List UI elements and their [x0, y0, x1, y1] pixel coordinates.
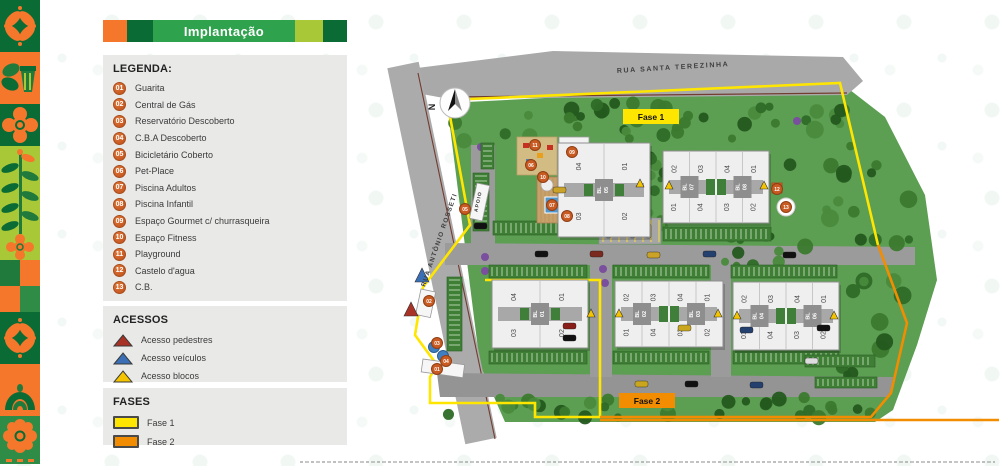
unit-label: 01 [821, 295, 828, 303]
fase1-label: Fase 1 [623, 109, 679, 124]
carport [613, 351, 709, 364]
tree [830, 114, 841, 125]
legend-item-label: Central de Gás [135, 100, 196, 110]
legend-item-label: Castelo d'agua [135, 266, 195, 276]
legend-item-label: Piscina Adultos [135, 183, 196, 193]
tree [672, 124, 681, 133]
acesso-item: Acesso veículos [113, 349, 337, 367]
legend-item-number: 09 [113, 215, 126, 228]
tree [784, 158, 797, 171]
fase-item: Fase 2 [113, 432, 337, 451]
tile-x-flower [0, 0, 40, 52]
legend-item-number: 07 [113, 181, 126, 194]
unit-label: 01 [751, 165, 758, 173]
page-title: Implantação [153, 20, 295, 42]
legend-item: 12Castelo d'agua [113, 263, 337, 280]
car [750, 382, 763, 388]
acesso-triangle-icon [113, 334, 133, 347]
tree [456, 133, 471, 148]
tree [871, 313, 889, 331]
tree [855, 234, 867, 246]
bush [599, 265, 607, 273]
bush [793, 117, 801, 125]
map-marker-10: 10 [538, 172, 549, 183]
fase-item-label: Fase 2 [147, 437, 175, 447]
unit-label: 03 [794, 331, 801, 339]
map-marker-08: 08 [562, 211, 573, 222]
legend-item-label: Reservatório Descoberto [135, 116, 235, 126]
svg-text:01: 01 [434, 367, 440, 373]
legend-item-label: C.B.A Descoberto [135, 133, 207, 143]
carport [489, 351, 587, 364]
tree [721, 258, 729, 266]
legend-item-number: 10 [113, 231, 126, 244]
unit-label: 04 [768, 331, 775, 339]
legend-item: 06Pet-Place [113, 163, 337, 180]
residential-block: 0203040101040302BL04BL06 [733, 282, 841, 353]
tree [584, 397, 596, 409]
legend-item: 07Piscina Adultos [113, 180, 337, 197]
tree [609, 98, 620, 109]
unit-label: 04 [511, 293, 518, 301]
unit-label: 02 [741, 295, 748, 303]
svg-text:13: 13 [783, 205, 789, 211]
tree [742, 397, 750, 405]
car [783, 252, 796, 258]
tree [867, 168, 876, 177]
car [474, 223, 487, 229]
svg-text:07: 07 [549, 203, 555, 209]
carport [447, 277, 462, 351]
unit-label: 04 [678, 294, 685, 302]
tree [656, 128, 670, 142]
block-label: BL [635, 310, 641, 318]
tile-flower-ring [0, 416, 40, 464]
map-marker-13: 13 [781, 202, 792, 213]
acesso-item: Acesso blocos [113, 367, 337, 385]
map-marker-01: 01 [432, 364, 443, 375]
acessos-panel: ACESSOS Acesso pedestresAcesso veículosA… [103, 306, 347, 382]
unit-label: 04 [698, 203, 705, 211]
svg-text:Fase 2: Fase 2 [634, 396, 661, 406]
unit-label: 03 [576, 212, 583, 220]
tree [876, 333, 893, 350]
block-number: 06 [813, 313, 819, 319]
map-marker-05: 05 [460, 204, 471, 215]
block-label: BL [683, 183, 689, 191]
svg-text:12: 12 [774, 187, 780, 193]
car [805, 358, 818, 364]
block-label: BL [736, 183, 742, 191]
acesso-pedestres-marker [404, 302, 418, 316]
fases-panel: FASES Fase 1Fase 2 [103, 388, 347, 445]
carport [481, 143, 494, 169]
bush [481, 267, 489, 275]
residential-block: 0203040101040302BL02BL03 [615, 281, 725, 350]
car [590, 251, 603, 257]
carport [489, 265, 587, 278]
block-number: 05 [604, 187, 610, 193]
tree [900, 190, 918, 208]
block-number: 08 [743, 184, 749, 190]
carport [731, 265, 837, 278]
tree [737, 117, 752, 132]
car [678, 325, 691, 331]
fase-item-label: Fase 1 [147, 418, 175, 428]
tree [806, 121, 824, 139]
map-marker-04: 04 [441, 356, 452, 367]
header-seg-lightgreen [295, 20, 323, 42]
tile-checkerboard [0, 260, 40, 312]
tile-plant-pot [0, 52, 40, 104]
svg-text:08: 08 [564, 214, 570, 220]
unit-label: 02 [671, 165, 678, 173]
site-plan-svg: APOIO04010302BL050203040101040302BL07BL0… [385, 25, 1000, 445]
tree [500, 128, 511, 139]
residential-block: 0203040101040302BL07BL08 [663, 151, 771, 226]
unit-label: 02 [751, 203, 758, 211]
block-label: BL [689, 310, 695, 318]
carport [663, 227, 771, 241]
tile-flower-small [0, 234, 40, 260]
unit-label: 01 [559, 293, 566, 301]
unit-label: 02 [705, 328, 712, 336]
block-number: 02 [642, 311, 648, 317]
legend-item: 08Piscina Infantil [113, 196, 337, 213]
block-label: BL [753, 312, 759, 320]
tree [443, 409, 454, 420]
block-label: BL [597, 186, 603, 194]
tree [760, 399, 772, 411]
header-seg-orange [103, 20, 127, 42]
car [535, 251, 548, 257]
legend-item: 03Reservatório Descoberto [113, 113, 337, 130]
tree [524, 111, 533, 120]
tree [699, 112, 709, 122]
tile-arches [0, 364, 40, 416]
map-marker-02: 02 [424, 296, 435, 307]
legend-item-label: Piscina Infantil [135, 199, 193, 209]
legend-item-number: 02 [113, 98, 126, 111]
fases-items: Fase 1Fase 2 [113, 413, 337, 451]
unit-label: 04 [794, 295, 801, 303]
unit-label: 01 [624, 328, 631, 336]
unit-label: 03 [511, 329, 518, 337]
unit-label: 04 [724, 165, 731, 173]
carport [613, 265, 709, 278]
tree [799, 392, 810, 403]
legend-item: 13C.B. [113, 279, 337, 296]
tree [905, 235, 913, 243]
unit-label: 03 [698, 165, 705, 173]
tree [833, 196, 843, 206]
tree [591, 99, 603, 111]
fine-print-disclaimer [300, 461, 995, 463]
legend-panel: LEGENDA: 01Guarita02Central de Gás03Rese… [103, 55, 347, 301]
map-marker-12: 12 [772, 184, 783, 195]
acesso-item-label: Acesso pedestres [141, 335, 213, 345]
bush [601, 279, 609, 287]
car [685, 381, 698, 387]
unit-label: 02 [821, 331, 828, 339]
legend-item-label: Espaço Gourmet c/ churrasqueira [135, 216, 270, 226]
tile-x-flower [0, 312, 40, 364]
legend-item-number: 13 [113, 281, 126, 294]
tree [626, 97, 640, 111]
legend-item: 02Central de Gás [113, 97, 337, 114]
tree [728, 134, 736, 142]
acesso-item: Acesso pedestres [113, 331, 337, 349]
tree [846, 284, 860, 298]
unit-label: 02 [622, 212, 629, 220]
tree [772, 392, 787, 407]
fase-item: Fase 1 [113, 413, 337, 432]
svg-text:02: 02 [426, 299, 432, 305]
map-marker-06: 06 [526, 160, 537, 171]
svg-text:09: 09 [569, 150, 575, 156]
legend-item-number: 06 [113, 165, 126, 178]
tree [889, 235, 905, 251]
legend-item: 10Espaço Fitness [113, 229, 337, 246]
car [647, 252, 660, 258]
acesso-triangle-icon [113, 352, 133, 365]
tile-leaf-stem [0, 146, 40, 234]
block-label: BL [533, 310, 539, 318]
unit-label: 01 [705, 294, 712, 302]
acesso-item-label: Acesso blocos [141, 371, 199, 381]
svg-text:Fase 1: Fase 1 [638, 112, 665, 122]
tree [827, 405, 837, 415]
tree [797, 239, 813, 255]
header-seg-darkgreen-2 [323, 20, 347, 42]
tree [679, 117, 691, 129]
acesso-item-label: Acesso veículos [141, 353, 206, 363]
car [703, 251, 716, 257]
tree [576, 112, 585, 121]
legend-item-number: 04 [113, 132, 126, 145]
tree [810, 104, 824, 118]
legend-item-number: 01 [113, 82, 126, 95]
map-marker-09: 09 [567, 147, 578, 158]
map-marker-03: 03 [432, 338, 443, 349]
bush [481, 253, 489, 261]
header-bar: Implantação [103, 20, 347, 42]
svg-text:04: 04 [443, 359, 449, 365]
legend-item-label: Pet-Place [135, 166, 174, 176]
fase2-label: Fase 2 [619, 393, 675, 408]
fase-swatch-icon [113, 416, 139, 429]
tree [836, 165, 852, 181]
fase-swatch-icon [113, 435, 139, 448]
legend-item-number: 08 [113, 198, 126, 211]
map-marker-07: 07 [547, 200, 558, 211]
tree [822, 205, 831, 214]
legend-item: 04C.B.A Descoberto [113, 130, 337, 147]
car [553, 187, 566, 193]
car [563, 323, 576, 329]
svg-text:03: 03 [434, 341, 440, 347]
legend-item-number: 05 [113, 148, 126, 161]
legend-item-label: C.B. [135, 282, 153, 292]
tree [774, 247, 784, 257]
block-number: 07 [690, 184, 696, 190]
svg-text:05: 05 [462, 207, 468, 213]
tree [765, 103, 773, 111]
unit-label: 03 [651, 294, 658, 302]
acessos-items: Acesso pedestresAcesso veículosAcesso bl… [113, 331, 337, 385]
header-seg-darkgreen [127, 20, 153, 42]
car [635, 381, 648, 387]
map-marker-11: 11 [530, 140, 541, 151]
tree [848, 206, 860, 218]
fases-title: FASES [113, 396, 337, 408]
tree [756, 102, 767, 113]
decorative-side-strip [0, 0, 40, 466]
site-plan-map: APOIO04010302BL050203040101040302BL07BL0… [385, 25, 1000, 445]
block-number: 03 [696, 311, 702, 317]
legend-item-label: Guarita [135, 83, 165, 93]
tile-flower [0, 104, 40, 146]
tree [573, 122, 583, 132]
block-number: 01 [540, 311, 546, 317]
tree [625, 134, 634, 143]
tree [853, 404, 863, 414]
unit-label: 01 [622, 163, 629, 171]
unit-label: 02 [624, 294, 631, 302]
svg-text:11: 11 [532, 143, 538, 149]
tree [600, 402, 609, 411]
acessos-title: ACESSOS [113, 314, 337, 326]
car [740, 327, 753, 333]
tree [771, 119, 780, 128]
legend-item-number: 03 [113, 115, 126, 128]
legend-item: 11Playground [113, 246, 337, 263]
legend-title: LEGENDA: [113, 63, 337, 75]
legend-item-label: Playground [135, 249, 181, 259]
legend-item-label: Bicicletário Coberto [135, 150, 213, 160]
car [817, 325, 830, 331]
legend-item: 09Espaço Gourmet c/ churrasqueira [113, 213, 337, 230]
svg-text:10: 10 [540, 175, 546, 181]
acesso-triangle-icon [113, 370, 133, 383]
legend-items: 01Guarita02Central de Gás03Reservatório … [113, 80, 337, 296]
carport [815, 377, 877, 388]
legend-item-label: Espaço Fitness [135, 233, 197, 243]
unit-label: 01 [671, 203, 678, 211]
unit-label: 04 [576, 163, 583, 171]
block-number: 04 [760, 312, 766, 319]
tree [732, 247, 744, 259]
svg-text:06: 06 [528, 163, 534, 169]
tree [859, 277, 869, 287]
unit-label: 04 [651, 328, 658, 336]
tree [722, 395, 736, 409]
legend-item: 01Guarita [113, 80, 337, 97]
legend-item: 05Bicicletário Coberto [113, 146, 337, 163]
north-label: N [427, 104, 437, 111]
block-label: BL [806, 312, 812, 320]
legend-item-number: 11 [113, 248, 126, 261]
tree [564, 112, 575, 123]
legend-item-number: 12 [113, 264, 126, 277]
car [563, 335, 576, 341]
unit-label: 03 [768, 295, 775, 303]
unit-label: 03 [724, 203, 731, 211]
